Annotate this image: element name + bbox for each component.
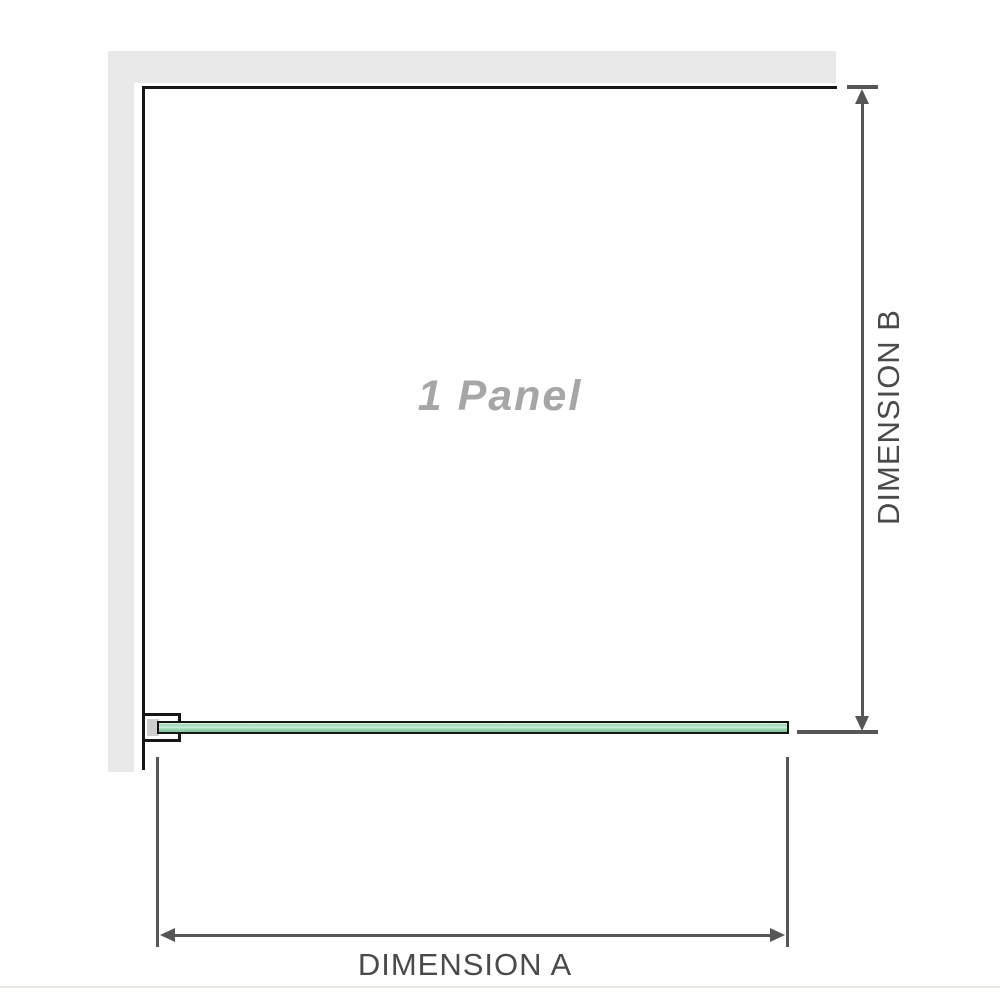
- dimension-a-label: DIMENSION A: [150, 948, 780, 982]
- extension-line-right: [786, 757, 789, 947]
- arrow-left-icon: [160, 928, 175, 942]
- panel-dimension-diagram: 1 Panel DIMENSION B DIMENSION A: [0, 0, 1000, 1000]
- footer-divider: [0, 986, 1000, 988]
- panel-count-label: 1 Panel: [250, 370, 750, 422]
- panel-outline-top: [143, 86, 837, 89]
- arrow-down-icon: [855, 716, 869, 731]
- arrow-up-icon: [855, 89, 869, 104]
- dimension-b-label: DIMENSION B: [873, 92, 905, 742]
- wall-left-segment: [108, 51, 134, 772]
- glass-panel: [157, 721, 789, 734]
- panel-outline-left: [142, 86, 145, 770]
- dimension-b-line: [861, 100, 864, 722]
- arrow-right-icon: [770, 928, 785, 942]
- wall-top-segment: [108, 51, 836, 83]
- dimension-a-line: [168, 934, 774, 937]
- extension-line-left: [156, 757, 159, 947]
